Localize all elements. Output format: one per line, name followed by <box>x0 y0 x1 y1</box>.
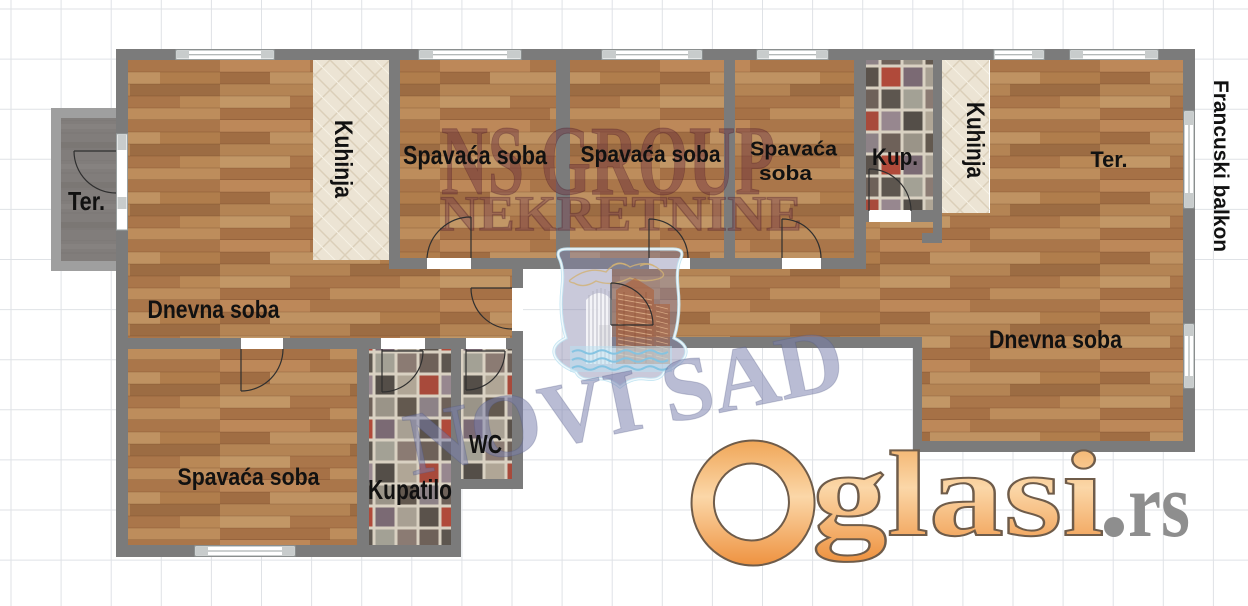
svg-text:Dnevna soba: Dnevna soba <box>989 326 1123 354</box>
svg-text:Kup.: Kup. <box>872 144 918 171</box>
svg-text:Kuhinja: Kuhinja <box>961 102 989 179</box>
svg-text:Ter.: Ter. <box>68 186 105 216</box>
svg-text:Spavaća soba: Spavaća soba <box>581 141 721 167</box>
svg-text:NEKRETNINE: NEKRETNINE <box>440 185 802 241</box>
svg-text:Dnevna soba: Dnevna soba <box>148 296 281 324</box>
svg-text:glasi: glasi <box>812 427 1104 562</box>
svg-text:Spavaća: Spavaća <box>750 139 838 161</box>
svg-text:Francuski balkon: Francuski balkon <box>1209 80 1232 252</box>
svg-text:WC: WC <box>469 429 502 459</box>
svg-text:Spavaća soba: Spavaća soba <box>178 464 321 491</box>
svg-text:Ter.: Ter. <box>1091 147 1128 172</box>
svg-text:soba: soba <box>759 163 813 185</box>
svg-text:rs: rs <box>1128 454 1190 556</box>
svg-text:Kuhinja: Kuhinja <box>329 120 357 199</box>
svg-text:Spavaća soba: Spavaća soba <box>403 140 547 170</box>
svg-text:Kupatilo: Kupatilo <box>368 474 452 505</box>
